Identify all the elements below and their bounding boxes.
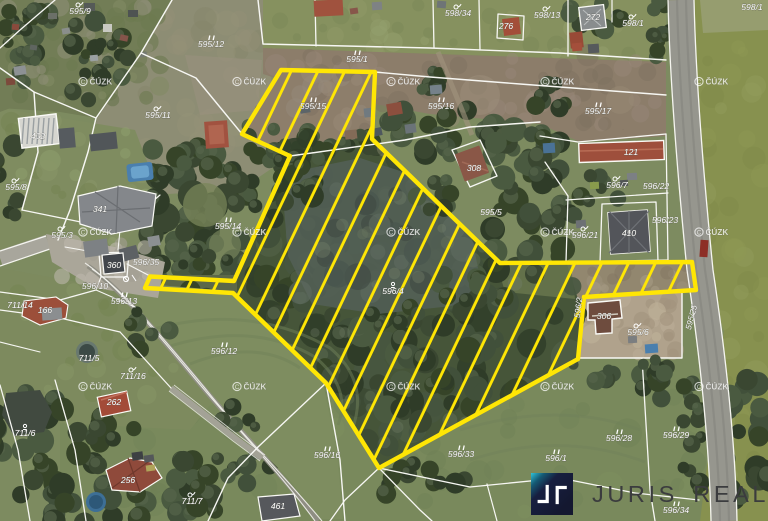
svg-text:598/13: 598/13 (534, 10, 561, 20)
svg-text:711/6: 711/6 (15, 428, 36, 438)
svg-text:ČÚZK: ČÚZK (398, 76, 421, 87)
svg-text:C: C (697, 79, 702, 86)
svg-text:ČÚZK: ČÚZK (244, 226, 267, 237)
svg-text:C: C (697, 229, 702, 236)
svg-text:595/1: 595/1 (346, 54, 368, 64)
svg-text:596/13: 596/13 (111, 296, 138, 306)
svg-text:C: C (389, 79, 394, 86)
svg-text:595/3: 595/3 (51, 230, 73, 240)
svg-text:ČÚZK: ČÚZK (398, 381, 421, 392)
svg-text:ČÚZK: ČÚZK (90, 381, 113, 392)
svg-text:595/9: 595/9 (69, 6, 91, 16)
svg-text:ČÚZK: ČÚZK (706, 381, 729, 392)
svg-text:C: C (697, 384, 702, 391)
svg-text:306: 306 (597, 311, 612, 321)
svg-text:596/33: 596/33 (448, 449, 475, 459)
svg-text:596/35: 596/35 (133, 257, 160, 267)
svg-text:ČÚZK: ČÚZK (398, 226, 421, 237)
svg-text:C: C (543, 79, 548, 86)
svg-text:596/7: 596/7 (606, 180, 629, 190)
svg-text:595/14: 595/14 (215, 221, 242, 231)
svg-text:598/1: 598/1 (741, 2, 763, 12)
svg-text:711/7: 711/7 (182, 496, 204, 506)
svg-text:596/29: 596/29 (663, 430, 690, 440)
svg-text:272: 272 (585, 12, 601, 22)
svg-text:C: C (235, 384, 240, 391)
svg-text:ČÚZK: ČÚZK (244, 76, 267, 87)
svg-text:ČÚZK: ČÚZK (552, 76, 575, 87)
svg-text:432: 432 (31, 131, 46, 141)
svg-text:711/14: 711/14 (7, 300, 33, 310)
svg-text:711/5: 711/5 (79, 353, 100, 363)
svg-text:596/12: 596/12 (211, 346, 238, 356)
svg-text:166: 166 (38, 305, 53, 315)
svg-text:596/4: 596/4 (382, 286, 404, 296)
svg-text:596/21: 596/21 (572, 230, 599, 240)
svg-text:595/5: 595/5 (480, 207, 502, 217)
svg-text:360: 360 (107, 260, 122, 270)
svg-text:C: C (543, 229, 548, 236)
svg-text:ČÚZK: ČÚZK (90, 76, 113, 87)
svg-text:ČÚZK: ČÚZK (90, 226, 113, 237)
svg-text:595/12: 595/12 (198, 39, 225, 49)
svg-text:595/17: 595/17 (585, 106, 613, 116)
svg-text:C: C (81, 229, 86, 236)
svg-text:256: 256 (120, 475, 136, 485)
svg-text:595/6: 595/6 (627, 327, 649, 337)
svg-text:711/16: 711/16 (120, 371, 146, 381)
svg-text:ČÚZK: ČÚZK (706, 76, 729, 87)
svg-text:C: C (543, 384, 548, 391)
svg-text:596/16: 596/16 (314, 450, 341, 460)
svg-text:276: 276 (498, 21, 514, 31)
svg-text:596/28: 596/28 (606, 433, 633, 443)
svg-text:ČÚZK: ČÚZK (244, 381, 267, 392)
svg-text:121: 121 (624, 147, 639, 157)
svg-text:595/15: 595/15 (300, 101, 327, 111)
svg-text:598/34: 598/34 (445, 8, 472, 18)
svg-text:598/1: 598/1 (622, 18, 644, 28)
svg-text:ČÚZK: ČÚZK (706, 226, 729, 237)
svg-text:C: C (81, 384, 86, 391)
svg-text:C: C (81, 79, 86, 86)
svg-text:JURIS REAL: JURIS REAL (592, 481, 768, 507)
svg-text:308: 308 (467, 163, 482, 173)
svg-text:341: 341 (93, 204, 108, 214)
svg-text:595/16: 595/16 (428, 101, 455, 111)
svg-text:595/8: 595/8 (5, 182, 27, 192)
svg-text:C: C (389, 229, 394, 236)
svg-text:596/23: 596/23 (652, 215, 679, 225)
svg-text:C: C (235, 79, 240, 86)
svg-text:596/10: 596/10 (82, 281, 109, 291)
svg-text:262: 262 (106, 397, 122, 407)
svg-text:595/11: 595/11 (145, 110, 171, 120)
svg-text:596/1: 596/1 (545, 453, 567, 463)
svg-text:410: 410 (622, 228, 637, 238)
svg-text:461: 461 (271, 501, 286, 511)
svg-text:596/22: 596/22 (643, 181, 670, 191)
svg-text:ČÚZK: ČÚZK (552, 381, 575, 392)
svg-text:C: C (389, 384, 394, 391)
